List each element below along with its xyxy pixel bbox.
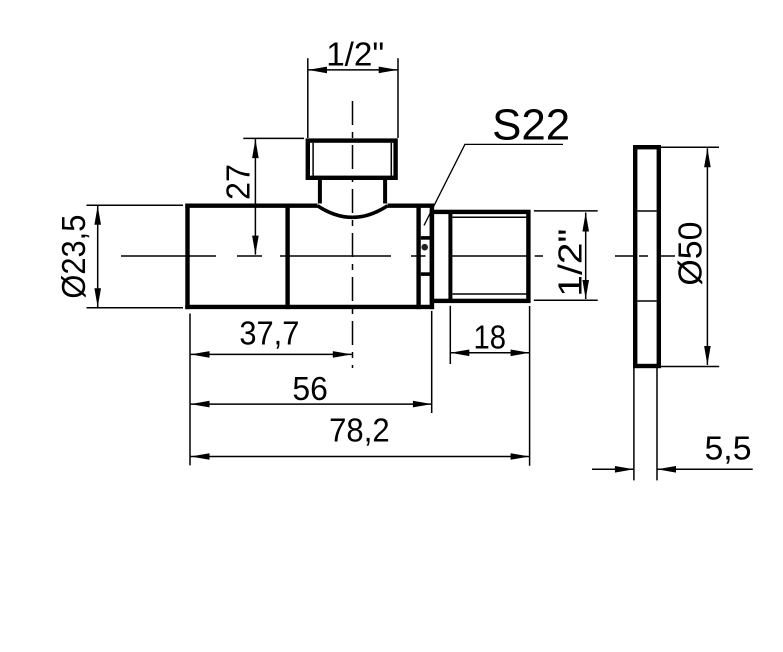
svg-text:Ø23,5: Ø23,5 (56, 215, 93, 299)
svg-text:S22: S22 (492, 101, 570, 149)
svg-text:1/2": 1/2" (326, 36, 384, 73)
svg-text:27: 27 (220, 164, 257, 200)
svg-text:56: 56 (292, 371, 328, 408)
svg-text:18: 18 (474, 320, 507, 357)
svg-text:1/2": 1/2" (553, 229, 590, 297)
svg-text:78,2: 78,2 (329, 413, 390, 450)
svg-text:5,5: 5,5 (705, 431, 752, 468)
svg-text:Ø50: Ø50 (672, 222, 709, 286)
svg-text:37,7: 37,7 (239, 316, 299, 353)
